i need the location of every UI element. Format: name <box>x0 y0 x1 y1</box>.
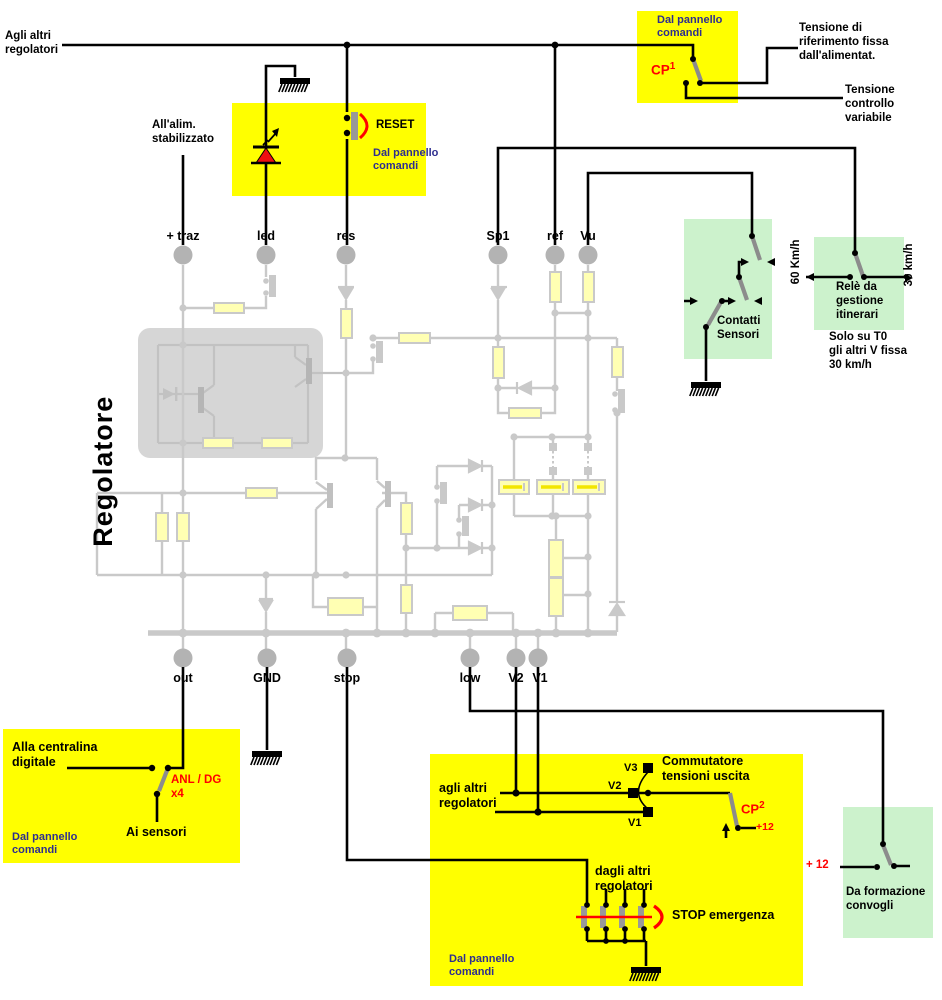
stop-emergenza-buttons[interactable] <box>576 906 662 928</box>
ground-icon <box>251 751 282 765</box>
agli-altri-label: agli altri regolatori <box>439 781 497 811</box>
faded-internal-circuit <box>97 246 625 668</box>
formazione-switch[interactable] <box>883 845 891 865</box>
terminal-led-label: led <box>226 229 306 244</box>
rele-switch[interactable] <box>855 253 863 276</box>
trimmer-link-dashes <box>553 451 588 467</box>
reset-label: RESET <box>376 119 414 133</box>
cp1-panel-label: Dal pannello comandi <box>657 14 722 40</box>
cp2-arrow-icon <box>722 823 730 831</box>
cp1-label: CP1 <box>651 61 675 79</box>
v2-label: V2 <box>608 780 621 793</box>
alla-centralina-label: Alla centralina digitale <box>12 740 97 770</box>
solo-t0-note: Solo su T0 gli altri V fissa 30 km/h <box>829 331 907 372</box>
pushbutton-cap-icon <box>654 906 662 928</box>
cp1-text: CP <box>651 63 670 78</box>
terminal-stop-label: stop <box>307 671 387 686</box>
contatti-sensori-label: Contatti Sensori <box>717 315 760 343</box>
commutatore-title: Commutatore tensioni uscita <box>662 754 750 784</box>
formazione-label: Da formazione convogli <box>846 886 925 914</box>
centralina-panel-label: Dal pannello comandi <box>12 831 77 857</box>
external-wiring <box>62 42 913 981</box>
anl-dg-switch[interactable] <box>159 768 168 791</box>
speed-30-label: 30 km/h <box>903 225 917 305</box>
cp2-label: CP2 <box>741 800 765 817</box>
terminal-gnd-label: GND <box>227 671 307 686</box>
trimmer-link-squares <box>549 443 592 475</box>
ground-icon <box>279 78 310 92</box>
cp2-sup: 2 <box>759 800 765 811</box>
plus12-label: +12 <box>756 821 774 834</box>
pushbutton-cap-icon <box>360 114 367 138</box>
terminal-v1-label: V1 <box>500 671 580 686</box>
page-title: Regolatore <box>87 351 119 591</box>
commutatore-panel-label: Dal pannello comandi <box>449 953 514 979</box>
terminal-traz-label: + traz <box>143 229 223 244</box>
cp1-sup: 1 <box>670 61 676 72</box>
cp1-switch[interactable] <box>693 59 701 81</box>
ground-icon <box>630 967 661 981</box>
contact-arrow-icons <box>690 258 775 305</box>
tensione-variabile-label: Tensione controllo variabile <box>845 84 895 125</box>
schematic-drawing <box>0 0 942 1000</box>
reset-panel-label: Dal pannello comandi <box>373 147 438 173</box>
rele-label: Relè da gestione itinerari <box>836 281 883 322</box>
v1-label: V1 <box>628 817 641 830</box>
anl-dg-label: ANL / DG x4 <box>171 774 221 802</box>
formazione-plus12-label: + 12 <box>806 859 829 873</box>
terminal-out-label: out <box>143 671 223 686</box>
stop-emergenza-label: STOP emergenza <box>672 908 774 923</box>
tensione-fissa-label: Tensione di riferimento fissa dall'alime… <box>799 22 888 63</box>
schematic-page: Agli altri regolatori All'alim. stabiliz… <box>0 0 942 1000</box>
ground-icon <box>690 382 721 396</box>
v3-label: V3 <box>624 762 637 775</box>
dagli-altri-label: dagli altri regolatori <box>595 864 653 894</box>
speed-60-label: 60 Km/h <box>790 222 804 302</box>
ai-sensori-label: Ai sensori <box>126 825 186 840</box>
contatti-sensori-switches[interactable] <box>708 236 760 325</box>
terminal-res-label: res <box>306 229 386 244</box>
terminal-vu-label: Vu <box>548 229 628 244</box>
cp2-switch[interactable] <box>730 793 737 826</box>
agli-altri-regolatori-label: Agli altri regolatori <box>5 30 58 58</box>
alim-stabilizzato-label: All'alim. stabilizzato <box>152 119 214 147</box>
cp2-text: CP <box>741 801 759 816</box>
reset-button[interactable] <box>351 112 367 140</box>
trimmer-icons <box>499 480 605 494</box>
